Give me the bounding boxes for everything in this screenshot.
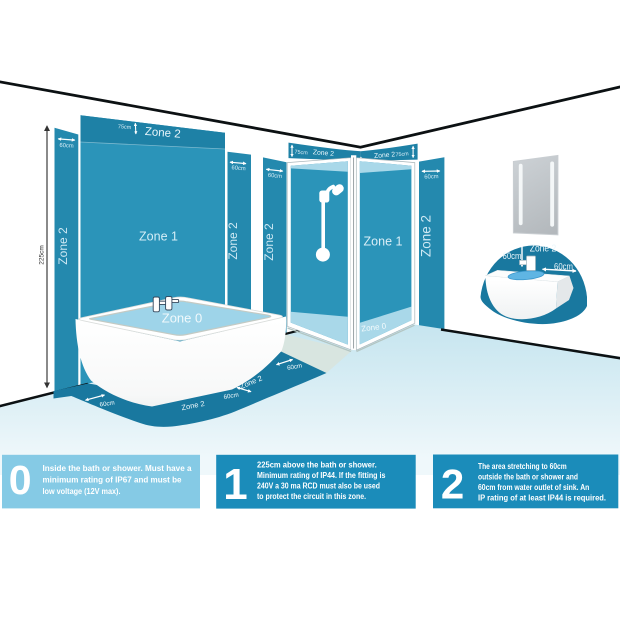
svg-text:Zone 2: Zone 2 <box>419 215 434 257</box>
svg-text:Inside the bath or shower. Mus: Inside the bath or shower. Must have a <box>43 463 192 473</box>
svg-text:1: 1 <box>223 460 247 509</box>
svg-text:Zone 0: Zone 0 <box>162 311 202 326</box>
svg-text:Zone 2: Zone 2 <box>262 223 276 261</box>
svg-text:low voltage (12V max).: low voltage (12V max). <box>43 486 121 496</box>
svg-text:IP rating of at least IP44 is: IP rating of at least IP44 is required. <box>478 493 606 503</box>
svg-text:60cm: 60cm <box>231 165 246 172</box>
svg-text:60cm: 60cm <box>424 174 439 180</box>
svg-text:60cm: 60cm <box>503 251 522 261</box>
svg-text:to protect the circuit in this: to protect the circuit in this zone. <box>257 491 366 501</box>
svg-text:225cm: 225cm <box>38 245 45 265</box>
svg-text:Zone 2: Zone 2 <box>226 222 240 260</box>
svg-text:60cm from water outlet of sink: 60cm from water outlet of sink. An <box>478 482 589 492</box>
svg-text:75cm: 75cm <box>395 151 409 158</box>
svg-text:Zone 2: Zone 2 <box>56 227 70 265</box>
svg-text:75cm: 75cm <box>118 124 132 131</box>
svg-text:Minimum rating of IP44. If the: Minimum rating of IP44. If the fitting i… <box>257 470 386 480</box>
svg-text:Zone 2: Zone 2 <box>530 244 557 255</box>
svg-text:Zone 1: Zone 1 <box>139 230 178 244</box>
svg-text:minimum rating of IP67 and mus: minimum rating of IP67 and must be <box>43 474 182 484</box>
svg-text:The area stretching to 60cm: The area stretching to 60cm <box>478 461 567 471</box>
svg-text:240V a 30 ma RCD must also be: 240V a 30 ma RCD must also be used <box>257 481 380 491</box>
svg-text:outside the bath or shower and: outside the bath or shower and <box>478 472 578 482</box>
svg-text:0: 0 <box>9 457 32 503</box>
svg-text:60cm: 60cm <box>59 143 74 150</box>
svg-text:60cm: 60cm <box>268 173 283 180</box>
svg-text:2: 2 <box>441 461 464 508</box>
svg-text:75cm: 75cm <box>294 149 308 156</box>
svg-text:225cm above the bath or shower: 225cm above the bath or shower. <box>257 460 377 470</box>
svg-text:Zone 1: Zone 1 <box>364 235 403 249</box>
